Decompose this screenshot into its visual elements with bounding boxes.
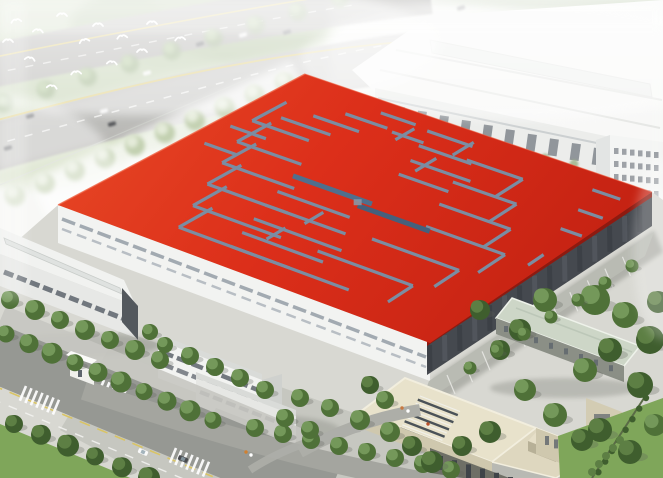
se-facade-panel — [562, 256, 567, 282]
tree — [136, 383, 147, 394]
tree — [572, 429, 586, 443]
window — [549, 343, 553, 349]
hedge-shrub — [622, 427, 628, 433]
tree — [599, 338, 614, 353]
tree — [645, 414, 659, 428]
tree — [518, 328, 526, 336]
tree — [544, 403, 559, 418]
tree — [113, 458, 125, 470]
tree — [180, 401, 193, 414]
tree — [362, 376, 373, 387]
tree — [111, 372, 124, 385]
tree — [52, 311, 63, 322]
tree — [613, 302, 629, 318]
tree — [534, 288, 549, 303]
person — [244, 450, 247, 453]
hedge-shrub — [588, 468, 596, 476]
tree — [152, 351, 163, 362]
tree — [182, 347, 193, 358]
tree — [331, 437, 342, 448]
tree — [32, 425, 44, 437]
window — [534, 337, 538, 343]
tree — [403, 436, 415, 448]
tree — [76, 320, 88, 332]
ridge-junction — [354, 199, 362, 205]
tree — [20, 334, 32, 346]
tree — [545, 311, 553, 319]
gatehouse-door — [78, 370, 82, 377]
person — [400, 406, 403, 409]
se-facade-panel — [457, 325, 462, 351]
tree — [381, 422, 393, 434]
tree — [422, 451, 436, 465]
shadow — [490, 378, 640, 398]
tree — [207, 358, 218, 369]
hedge-shrub — [602, 452, 610, 460]
se-facade-panel — [442, 335, 447, 361]
tree — [143, 324, 153, 334]
tree — [619, 440, 634, 455]
tall-window — [466, 464, 471, 478]
tree — [58, 435, 72, 449]
tree — [292, 389, 303, 400]
tree — [158, 392, 170, 404]
tree — [126, 340, 138, 352]
tree — [626, 260, 634, 268]
tree — [277, 409, 288, 420]
tall-window — [480, 469, 485, 478]
tree — [387, 449, 398, 460]
se-facade-panel — [622, 216, 627, 242]
se-facade-panel — [592, 236, 597, 262]
left-edge-haze — [0, 0, 26, 300]
se-facade-panel — [427, 345, 432, 371]
tree — [599, 277, 607, 285]
window — [504, 326, 508, 332]
tree — [302, 421, 313, 432]
tree — [232, 369, 243, 380]
tree — [589, 418, 604, 433]
window — [609, 365, 613, 371]
tree — [89, 363, 101, 375]
tree — [257, 381, 268, 392]
tree — [572, 294, 580, 302]
tree — [464, 362, 472, 370]
hedge-shrub — [609, 444, 617, 452]
tree — [351, 410, 363, 422]
hedge-shrub — [595, 460, 603, 468]
person — [406, 409, 409, 412]
tree — [205, 412, 216, 423]
window — [545, 436, 549, 445]
se-facade-panel — [547, 265, 552, 291]
tree — [491, 345, 499, 353]
top-edge-haze — [0, 0, 663, 34]
tall-window — [494, 473, 499, 478]
aerial-rendering-canvas: Bird's-eye rendering of an industrial ca… — [0, 0, 663, 478]
window — [554, 439, 558, 448]
tree — [158, 337, 168, 347]
tree — [574, 358, 589, 373]
hedge-shrub — [595, 469, 601, 475]
tree — [377, 391, 388, 402]
tree — [480, 421, 494, 435]
rendering-svg — [0, 0, 663, 478]
person — [249, 453, 252, 456]
tree — [628, 372, 644, 388]
tree — [359, 443, 370, 454]
se-facade-panel — [577, 246, 582, 272]
window — [564, 348, 568, 354]
tree — [6, 415, 17, 426]
hedge-shrub — [636, 405, 642, 411]
tree — [67, 355, 78, 366]
tree — [322, 399, 333, 410]
se-facade-panel — [607, 226, 612, 252]
tree — [102, 331, 113, 342]
person — [426, 422, 429, 425]
tree — [453, 436, 465, 448]
tree — [247, 419, 258, 430]
tree — [87, 448, 98, 459]
tree — [42, 343, 55, 356]
tree — [471, 300, 483, 312]
hedge-shrub — [629, 416, 635, 422]
tree — [26, 300, 38, 312]
verge-tree — [126, 136, 138, 148]
tree — [515, 379, 529, 393]
